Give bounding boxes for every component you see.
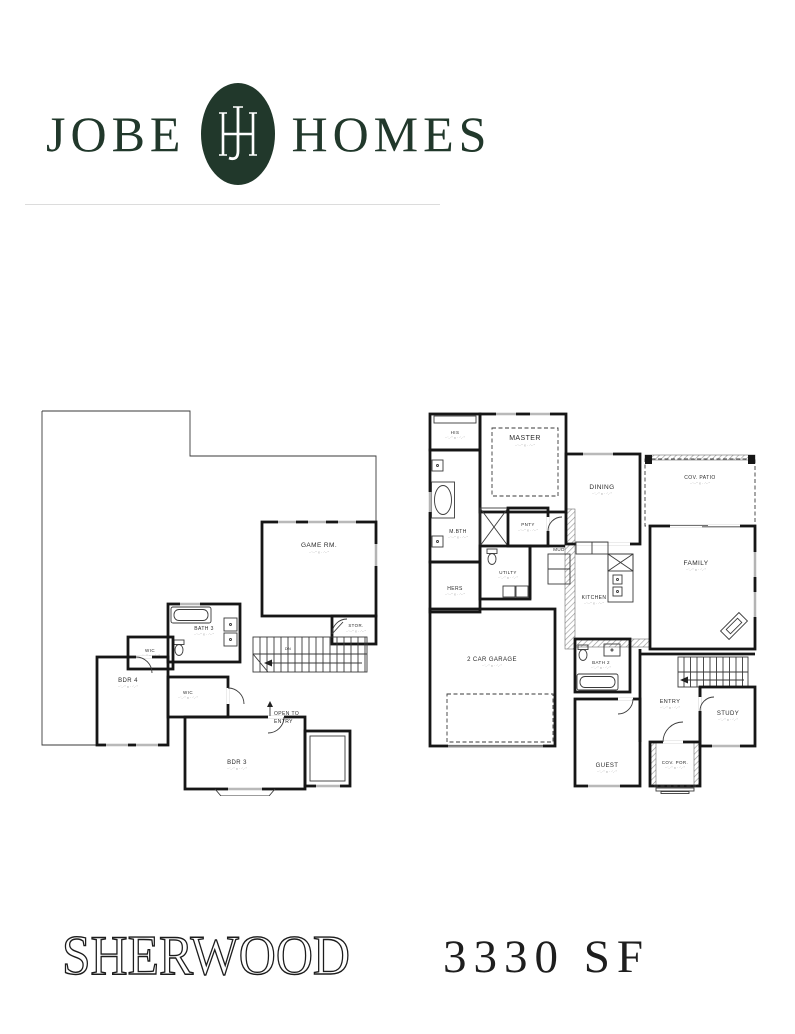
guest-door-arc xyxy=(618,699,633,714)
study-window xyxy=(712,745,740,748)
room-label-hers: HERS xyxy=(447,586,463,592)
room-cov-por: COV. POR. ··'-·" x ··'-·" xyxy=(650,722,700,794)
room-kitchen: KITCHEN ··'-·" x ··'-·" xyxy=(576,542,633,606)
room-dim-bdr3: ··'-·" x ··'-·" xyxy=(227,767,248,771)
fireplace xyxy=(721,613,748,640)
toilet-fixture xyxy=(174,640,184,656)
room-label-mud: MUD xyxy=(553,547,565,552)
room-dining xyxy=(566,454,640,544)
stairs-down-arrow xyxy=(264,660,272,667)
room-dim-bath3: ··'-·" x ··'-·" xyxy=(194,633,215,637)
room-dim-family: ··'-·" x ··'-·" xyxy=(686,568,707,572)
guest-door-gap xyxy=(618,698,633,701)
room-dim-mbth: ··'-·" x ··'-·" xyxy=(448,536,469,540)
family-slider-door xyxy=(670,525,740,528)
pnty-door-arc xyxy=(548,517,562,531)
first-floor-plan: HIS ··'-·" x ··'-·" MASTER ··'-·" x ··'-… xyxy=(418,402,764,794)
room-label-bdr4: BDR 4 xyxy=(118,678,138,684)
open-to-entry-line1: OPEN TO xyxy=(274,711,299,717)
flyer-page: JOBE HOMES GAME RM. ··'-·" x ··'-·" xyxy=(0,0,795,1034)
room-dim-stor: ··'-·" x ··'-·" xyxy=(346,630,367,634)
dining-window xyxy=(583,453,613,456)
plan-size-text: 3330 SF xyxy=(443,930,650,984)
room-label-his: HIS xyxy=(451,430,460,435)
washer-dryer xyxy=(503,586,528,597)
room-dim-cov-por: ··'-·" x ··'-·" xyxy=(665,766,686,770)
guest-window xyxy=(588,785,620,788)
stairs-up xyxy=(640,654,755,687)
entry-void-below xyxy=(305,731,350,786)
room-dim-entry: ··'-·" x ··'-·" xyxy=(660,706,681,710)
room-entry: ENTRY ··'-·" x ··'-·" xyxy=(640,649,700,742)
room-master xyxy=(480,414,566,512)
room-dim-game-rm: ··'-·" x ··'-·" xyxy=(309,551,330,555)
room-dim-bdr4: ··'-·" x ··'-·" xyxy=(118,685,139,689)
mbth-window xyxy=(429,492,432,512)
room-wic-a xyxy=(128,637,173,669)
wicb-door-arc xyxy=(228,688,244,704)
room-label-dining: DINING xyxy=(589,484,614,491)
room-label-wic-a: WIC xyxy=(145,648,155,653)
toilet-fixture-hall xyxy=(487,549,497,565)
room-label-master: MASTER xyxy=(509,435,541,442)
brand-name-right: HOMES xyxy=(291,109,491,159)
room-cov-patio: COV. PATIO ··'-·" x ··'-·" xyxy=(645,455,755,526)
room-dim-cov-patio: ··'-·" x ··'-·" xyxy=(690,482,711,486)
room-dim-utilty: ··'-·" x ··'-·" xyxy=(498,576,519,580)
room-label-bdr3: BDR 3 xyxy=(227,760,247,766)
second-floor-plan: GAME RM. ··'-·" x ··'-·" STOR. ··'-·" x … xyxy=(40,404,390,796)
room-label-utilty: UTILTY xyxy=(499,570,517,575)
room-label-game-rm: GAME RM. xyxy=(301,542,337,549)
stairs-down: DN xyxy=(253,637,367,672)
room-label-family: FAMILY xyxy=(683,560,708,567)
room-label-bath3: BATH 3 xyxy=(194,626,214,632)
room-mud: MUD xyxy=(530,546,570,599)
entry-void-inner xyxy=(310,736,345,781)
room-dim-wic-b: ··'-·" x ··'-·" xyxy=(178,696,199,700)
open-to-entry-note: OPEN TO ENTRY xyxy=(267,701,299,725)
room-label-wic-b: WIC xyxy=(183,690,193,695)
header-divider xyxy=(25,204,440,205)
tub-fixture xyxy=(171,607,211,623)
room-label-kitchen: KITCHEN xyxy=(582,595,607,601)
brand-name-left: JOBE xyxy=(46,109,185,159)
bath3-window xyxy=(180,603,200,606)
brand-monogram-icon xyxy=(199,81,277,187)
room-game xyxy=(262,522,376,616)
room-bdr3 xyxy=(185,717,305,789)
room-garage xyxy=(430,609,555,746)
mbth-sinks xyxy=(432,460,443,547)
room-dim-garage: ··'-·" x ··'-·" xyxy=(482,664,503,668)
room-dim-hers: ··'-·" x ··'-·" xyxy=(445,593,466,597)
room-label-garage: 2 CAR GARAGE xyxy=(467,657,517,663)
open-to-entry-line2: ENTRY xyxy=(274,719,293,725)
room-dim-master: ··'-·" x ··'-·" xyxy=(515,444,536,448)
his-shelf xyxy=(434,416,476,423)
master-closet xyxy=(480,508,508,546)
bdr4-door-arc xyxy=(136,657,152,673)
mbth-tub-fixture xyxy=(432,482,455,518)
plan-name-art: SHERWOOD xyxy=(60,922,360,990)
room-dim-pnty: ··'-·" x ··'-·" xyxy=(518,529,539,533)
study-door-arc xyxy=(700,697,714,711)
room-family xyxy=(650,526,755,649)
room-dim-bath2: ··'-·" x ··'-·" xyxy=(591,666,612,670)
brand-header: JOBE HOMES xyxy=(46,84,492,184)
room-dim-study: ··'-·" x ··'-·" xyxy=(718,718,739,722)
room-label-mbth: M.BTH xyxy=(449,529,467,535)
plan-name-text: SHERWOOD xyxy=(62,925,350,987)
kitchen-island xyxy=(608,554,633,602)
room-label-bath2: BATH 2 xyxy=(592,660,610,665)
hatched-walls xyxy=(565,455,755,786)
room-label-study: STUDY xyxy=(717,711,739,717)
garage-slab-dash xyxy=(447,694,553,742)
bdr3-window xyxy=(228,788,262,791)
room-label-guest: GUEST xyxy=(596,763,619,769)
room-label-cov-por: COV. POR. xyxy=(662,760,688,765)
roof-outline xyxy=(42,411,376,745)
room-dim-guest: ··'-·" x ··'-·" xyxy=(597,770,618,774)
wicb-door-gap xyxy=(227,688,230,704)
front-door-arc xyxy=(663,722,683,742)
room-dim-kitchen: ··'-·" x ··'-·" xyxy=(584,602,605,606)
balcony-window xyxy=(316,785,340,788)
garage-door xyxy=(448,745,543,748)
up-arrow-icon xyxy=(267,701,273,707)
porch-step-1 xyxy=(656,788,694,791)
room-pnty xyxy=(508,508,548,546)
room-label-stor: STOR. xyxy=(348,623,363,628)
porch-step-2 xyxy=(661,792,689,794)
stairs-label-dn: DN xyxy=(285,647,291,651)
room-dim-dining: ··'-·" x ··'-·" xyxy=(592,492,613,496)
room-label-cov-patio: COV. PATIO xyxy=(684,475,715,481)
dining-opening xyxy=(576,543,630,546)
sink-fixtures xyxy=(224,618,237,646)
room-dim-his: ··'-·" x ··'-·" xyxy=(445,436,466,440)
room-label-pnty: PNTY xyxy=(521,522,535,527)
room-label-entry: ENTRY xyxy=(660,699,681,705)
